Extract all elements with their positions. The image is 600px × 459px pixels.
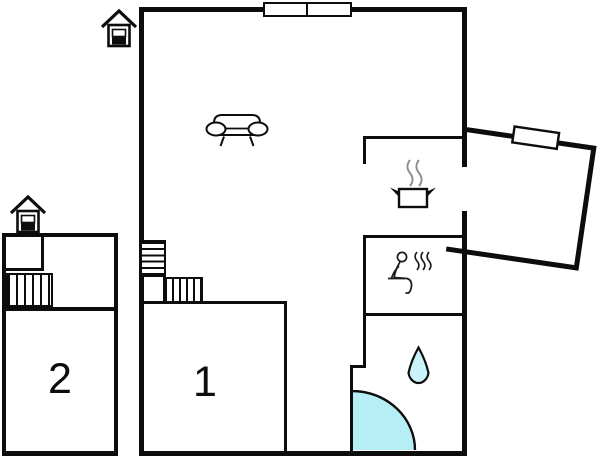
stairs-main-lower-flight: [163, 277, 203, 303]
sauna-person-icon: [385, 248, 435, 298]
stairs-annex: [6, 273, 53, 307]
room1-label: 1: [185, 358, 225, 406]
house-entrance-icon: [100, 8, 138, 50]
pot-body: [399, 189, 427, 207]
main-wall-left: [139, 7, 144, 456]
water-drop-icon: [405, 345, 432, 392]
bathroom-wall-left-lower: [350, 365, 353, 451]
house-window: [22, 216, 35, 223]
kitchen-wall-left-stub: [363, 136, 366, 164]
annex-vestibule-wall-right: [41, 237, 44, 271]
sofa-arm-right: [249, 123, 268, 136]
sauna-steam-line: [421, 252, 425, 270]
main-wall-bottom: [139, 451, 467, 456]
terrace: [0, 0, 600, 459]
house-window: [113, 30, 126, 37]
window-top-wall: [263, 2, 352, 17]
main-wall-right-lower: [462, 211, 467, 456]
floor-plan-canvas: 1 2: [0, 0, 600, 459]
sofa-leg-right: [250, 137, 254, 147]
sauna-wall-left: [363, 235, 366, 316]
steam-line: [407, 160, 412, 186]
sauna-steam-line: [427, 252, 431, 270]
annex-wall-right: [114, 233, 118, 456]
sofa-icon: [204, 108, 270, 150]
sauna-steam-line: [415, 252, 419, 270]
sauna-wall-top: [363, 235, 467, 238]
stairs-main-upper-flight: [140, 240, 166, 277]
sauna-person-leg: [394, 278, 412, 294]
room2-label: 2: [39, 355, 81, 403]
steam-line: [416, 160, 421, 186]
house-entrance-icon: [9, 194, 47, 236]
sofa-arm-left: [207, 123, 226, 136]
annex-vestibule-wall-bottom: [6, 268, 44, 271]
cooking-pot-icon: [386, 156, 438, 210]
bathroom-wall-left-upper: [363, 313, 366, 368]
sauna-person-arm: [392, 266, 400, 278]
sofa-leg-left: [221, 137, 225, 147]
window-divider: [306, 4, 308, 15]
room1-wall-right: [284, 301, 287, 451]
shower-quarter-circle: [351, 390, 417, 451]
house-door: [112, 37, 126, 45]
main-wall-right-upper: [462, 7, 467, 167]
kitchen-wall-top: [363, 136, 467, 139]
annex-wall-left: [2, 233, 6, 456]
room1-wall-top: [139, 301, 287, 304]
annex-wall-bottom: [2, 451, 118, 456]
bathroom-wall-top: [363, 313, 467, 316]
sauna-person-head: [397, 252, 406, 261]
terrace-floor: [448, 127, 597, 271]
annex-separator-wall: [6, 307, 114, 311]
water-drop-shape: [409, 348, 429, 384]
house-door: [21, 223, 35, 231]
